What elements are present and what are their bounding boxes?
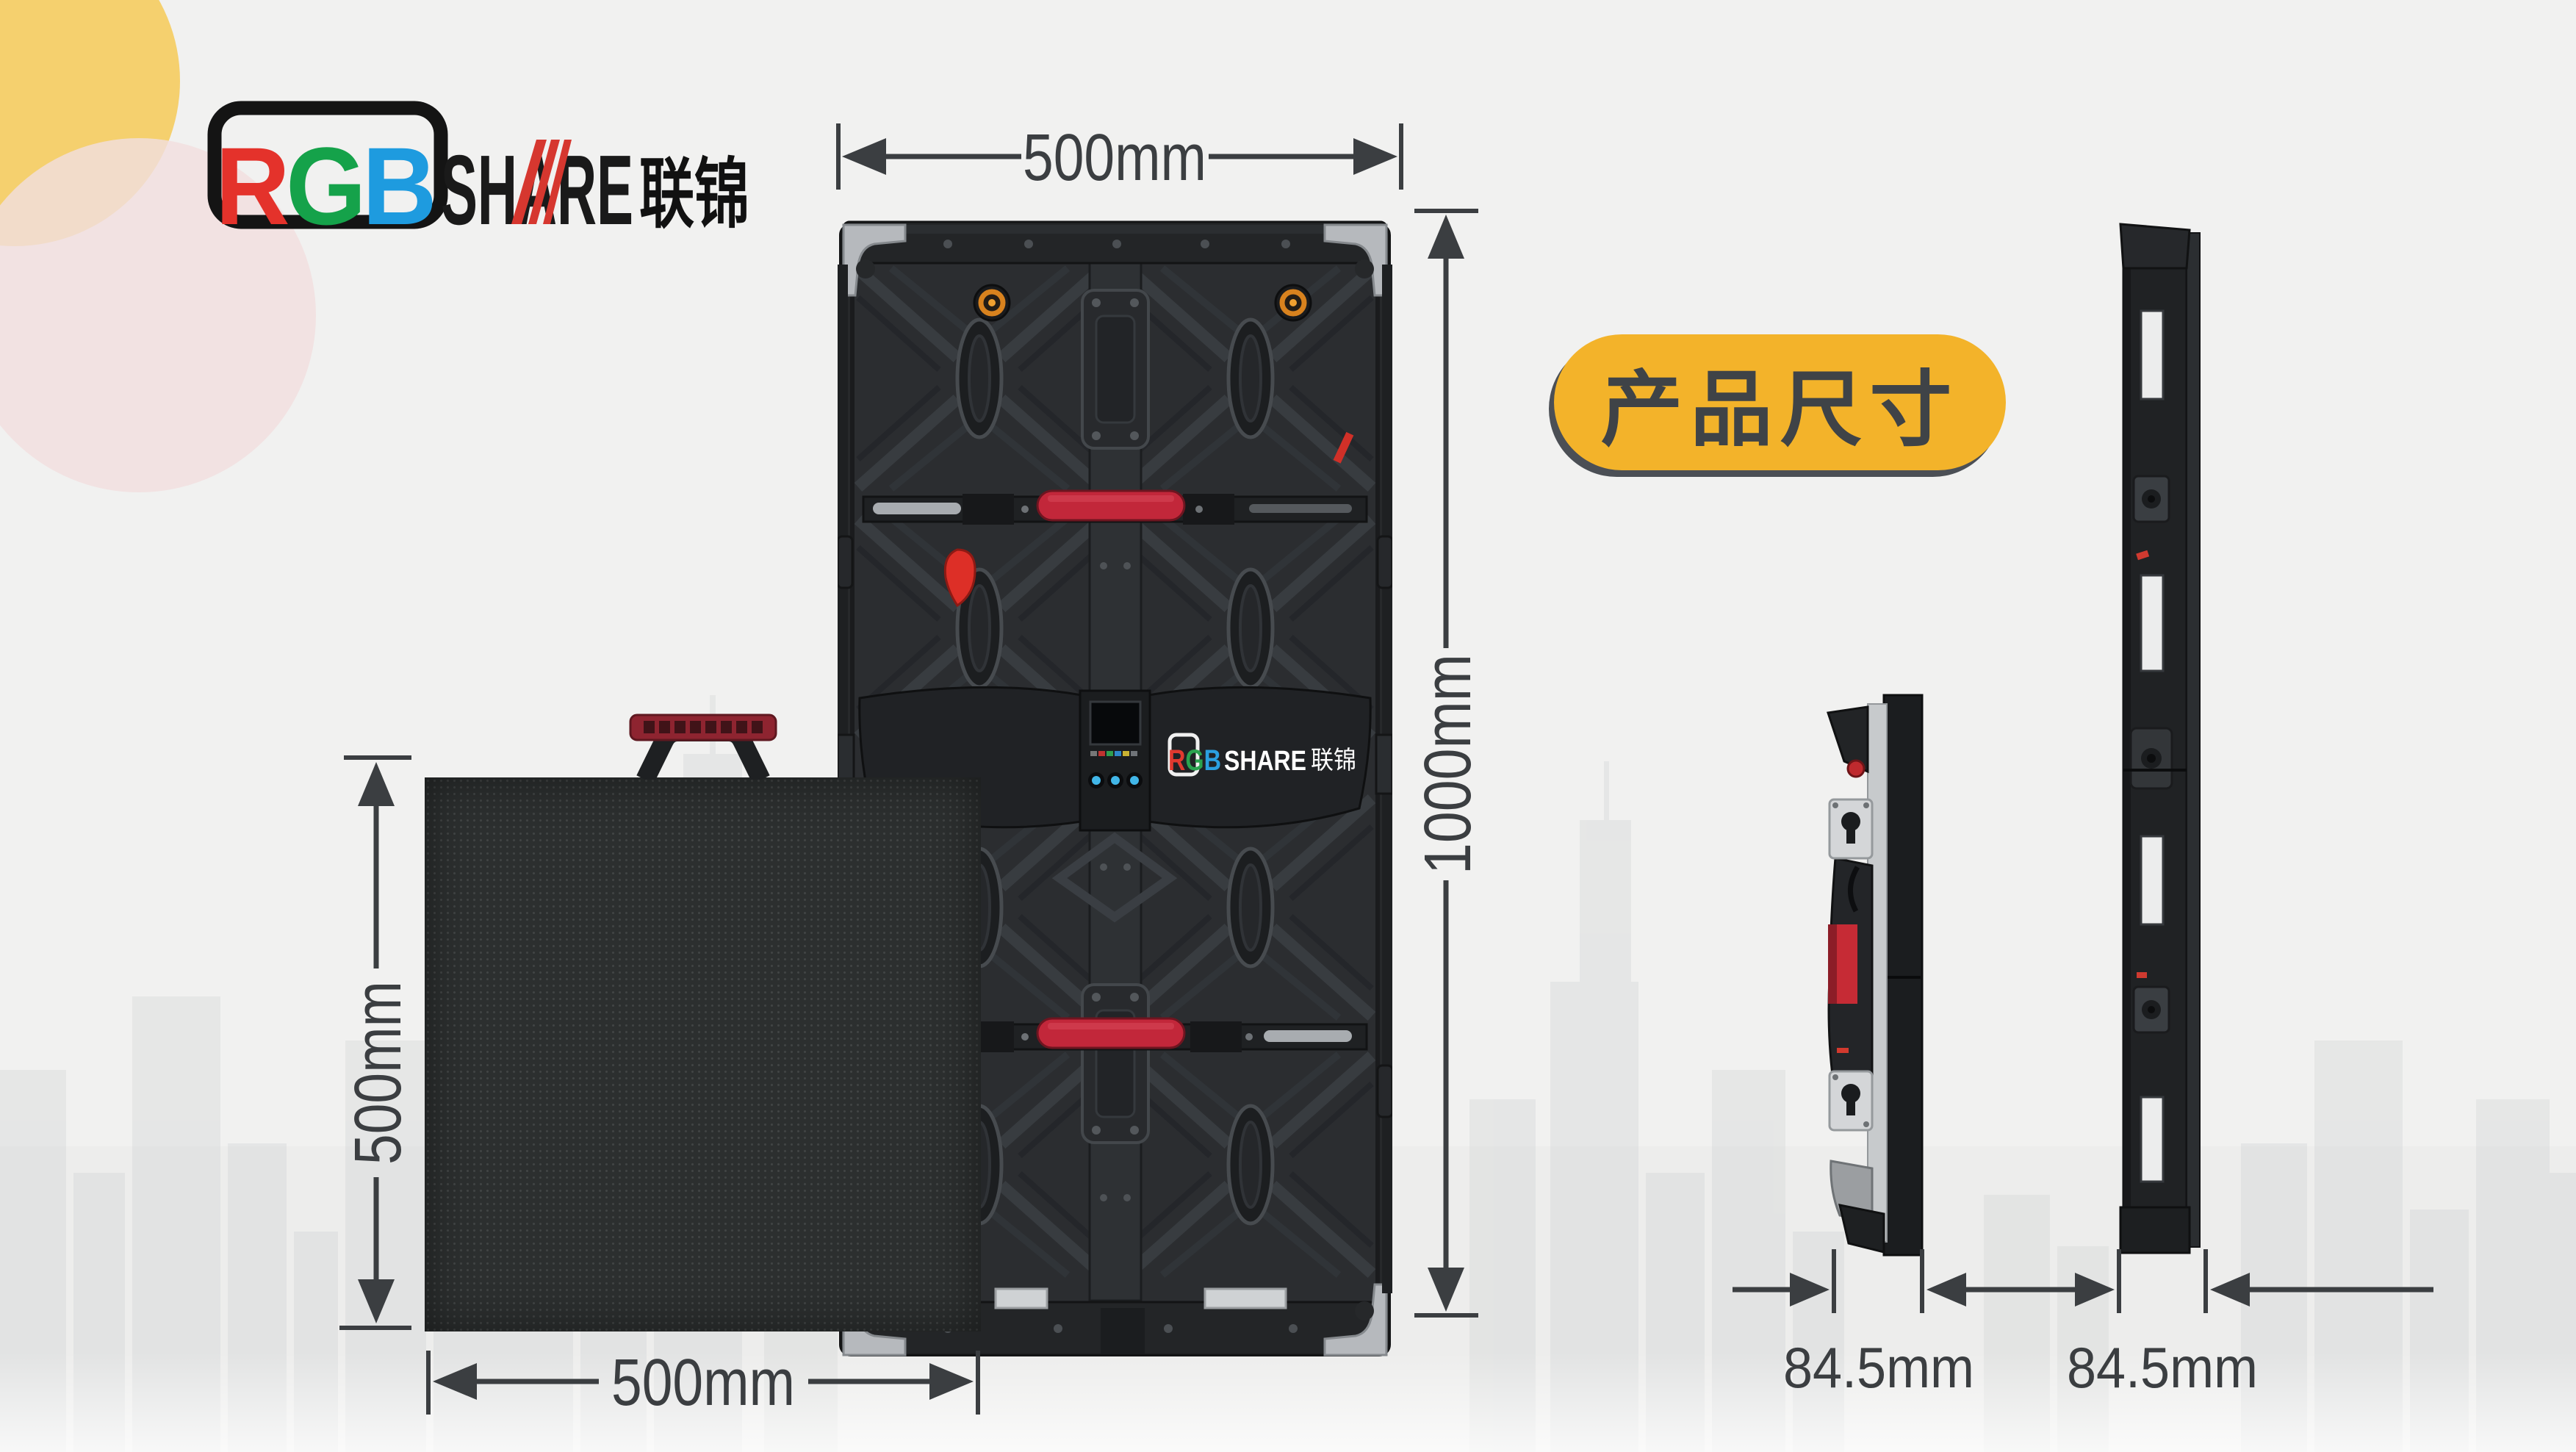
product-size-badge-label: 产品尺寸 [1601, 343, 1960, 462]
page-root: { "brand": { "r": "R", "g": "G", "b": "B… [0, 0, 2576, 1452]
console-led-indicators [1088, 772, 1143, 788]
logo-rgb-text: RGB [215, 124, 433, 248]
front-panel-led-surface [425, 777, 981, 1331]
side-red-pin [1837, 1048, 1849, 1053]
tall-side-red-clip-lower [2137, 972, 2147, 978]
product-size-badge: 产品尺寸 [1554, 334, 2006, 470]
cabinet-top-edge [843, 222, 1386, 263]
logo-cn-text: 联锦 [639, 152, 749, 237]
side-rear-slab [1884, 695, 1922, 1255]
side-lower-keyhole-plate [1830, 1071, 1872, 1130]
cabinet-logo-cn-text: 联锦 [1311, 747, 1356, 774]
upper-latch-bar [863, 491, 1367, 525]
console-screen [1090, 702, 1140, 744]
cabinet-logo-share-text: SHARE [1224, 746, 1306, 777]
brand-logo: RGB SHARE 联锦 [204, 94, 763, 248]
side-profile-short [1813, 691, 1925, 1260]
cabinet-logo-rgb-text: RGB [1168, 744, 1221, 777]
side-red-knob [1848, 761, 1864, 777]
carry-handle-illustration [626, 710, 780, 780]
tall-side-top-cap [2120, 224, 2190, 268]
tall-side-bottom-cap [2120, 1207, 2190, 1253]
side-upper-keyhole-plate [1830, 799, 1872, 858]
side-profile-tall [2116, 223, 2207, 1260]
